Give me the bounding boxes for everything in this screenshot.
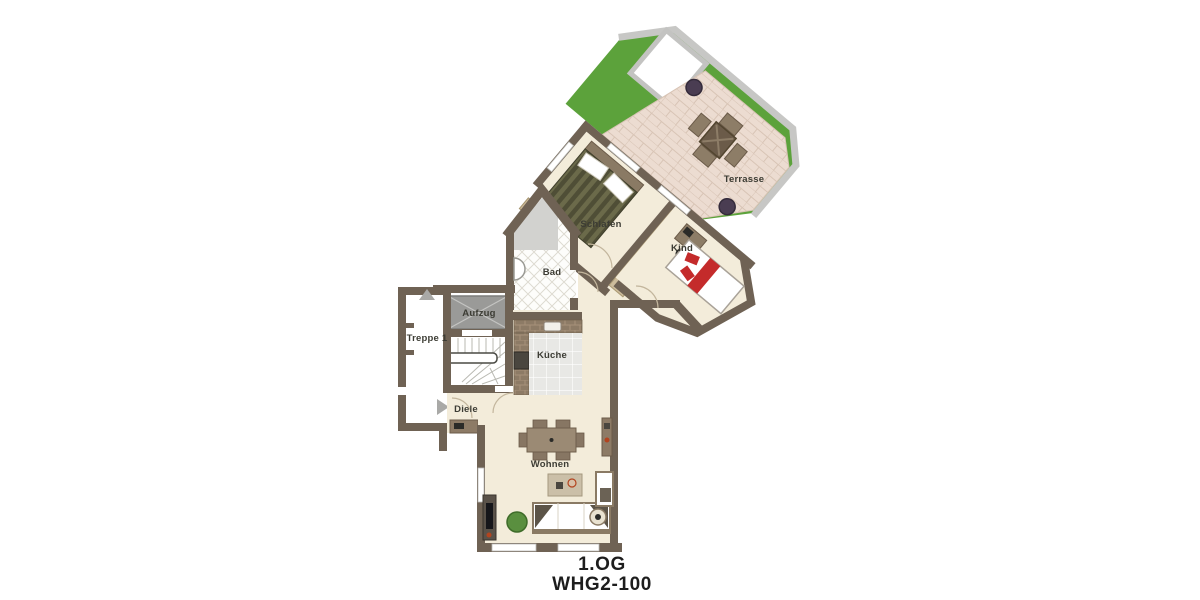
room-label-aufzug: Aufzug [462,308,495,319]
floorplan-page: Terrasse Schlafen Kind Bad Aufzug Treppe… [0,0,1200,600]
wohnen-bottom-window-2 [558,544,599,551]
room-label-terrasse: Terrasse [724,174,765,185]
bad-kueche-wall [506,312,582,320]
room-label-treppe: Treppe 1 [407,333,448,344]
kitchen-tile-floor [529,333,582,395]
landing-wall-tick-1 [406,323,414,328]
kitchen-stove [514,352,529,369]
corridor-top-wall [610,300,680,308]
diele-bench-items [454,423,464,429]
kitchen-sink [544,322,561,331]
armchair [596,472,613,506]
room-label-kueche: Küche [537,350,567,361]
room-label-wohnen: Wohnen [531,459,570,470]
plan-title-unit: WHG2-100 [552,574,652,595]
room-label-bad: Bad [543,267,562,278]
elevator-door-gap [462,330,492,336]
wall-shelf [602,418,612,456]
coffee-table [548,474,582,496]
plan-title-floor: 1.OG [578,554,626,575]
tv-sideboard [483,495,496,540]
entrance-nook-wall-v [439,423,447,451]
room-label-kind: Kind [671,243,693,254]
side-table-item [595,514,601,520]
wohnen-bottom-window-1 [492,544,536,551]
plant [507,512,527,532]
stair-door-gap [495,386,513,392]
stair-handrail [447,353,497,363]
landing-left-wall-upper [398,287,406,387]
bad-right-wall-upper [570,230,578,270]
treppe1-landing [398,287,449,451]
landing-wall-tick-2 [406,350,414,355]
floorplan-canvas: Terrasse Schlafen Kind Bad Aufzug Treppe… [0,0,1200,600]
stair-right-wall [505,287,513,393]
room-label-diele: Diele [454,404,478,415]
room-label-schlafen: Schlafen [580,219,621,230]
